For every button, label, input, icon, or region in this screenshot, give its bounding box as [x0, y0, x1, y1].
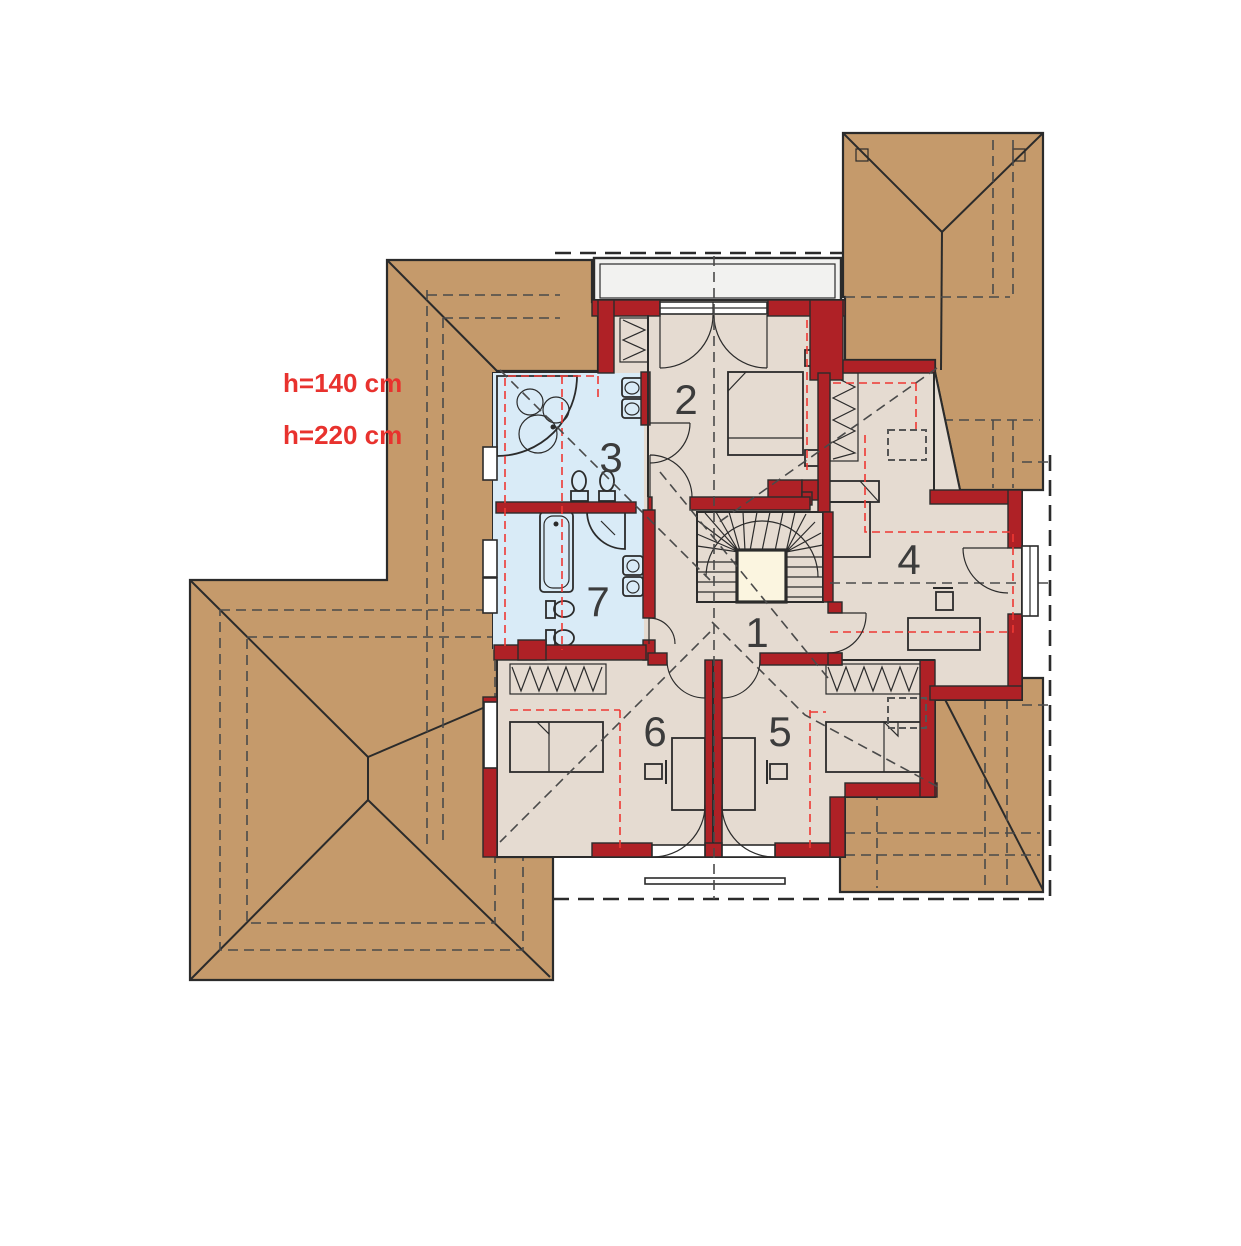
room-number-7: 7 [586, 578, 609, 625]
room-number-1: 1 [745, 609, 768, 656]
height-label-220: h=220 cm [283, 420, 402, 450]
floor-plan-canvas: h=140 cm h=220 cm 1 2 3 4 5 6 7 [0, 0, 1241, 1241]
height-label-140: h=140 cm [283, 368, 402, 398]
floor-plan-drawing: h=140 cm h=220 cm 1 2 3 4 5 6 7 [0, 0, 1241, 1241]
balcony-bottom [645, 878, 785, 884]
room-number-2: 2 [674, 376, 697, 423]
knee-wall-window [483, 578, 497, 613]
knee-wall-window [484, 702, 497, 768]
room-number-4: 4 [897, 536, 920, 583]
knee-wall-window [483, 540, 497, 577]
room-number-6: 6 [643, 708, 666, 755]
balcony-top [594, 258, 841, 302]
room-number-3: 3 [599, 434, 622, 481]
knee-wall-window [483, 447, 497, 480]
room-number-5: 5 [768, 708, 791, 755]
